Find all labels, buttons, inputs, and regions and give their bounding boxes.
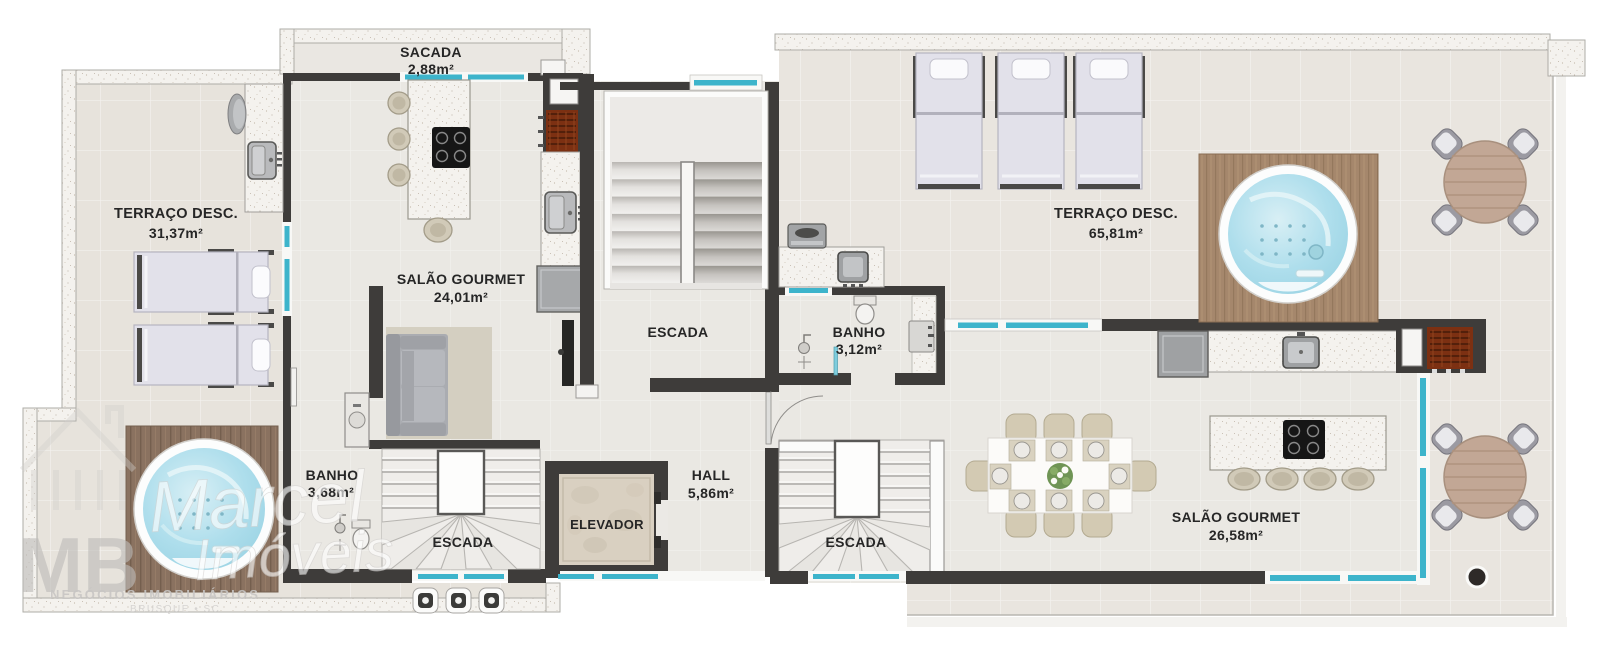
svg-text:65,81m²: 65,81m² [1089,225,1143,241]
svg-text:BANHO: BANHO [833,324,886,340]
svg-text:2,88m²: 2,88m² [408,61,454,77]
svg-text:TERRAÇO DESC.: TERRAÇO DESC. [1054,206,1178,222]
svg-text:26,58m²: 26,58m² [1209,527,1263,543]
svg-text:HALL: HALL [692,467,731,483]
svg-text:SALÃO GOURMET: SALÃO GOURMET [397,270,525,287]
svg-text:5,86m²: 5,86m² [688,485,734,501]
svg-text:BRUSQUE • SC: BRUSQUE • SC [130,604,220,615]
svg-text:ESCADA: ESCADA [433,534,494,550]
svg-text:TERRAÇO DESC.: TERRAÇO DESC. [114,206,238,222]
svg-text:ELEVADOR: ELEVADOR [570,517,644,532]
svg-text:24,01m²: 24,01m² [434,289,488,305]
svg-text:ESCADA: ESCADA [648,324,709,340]
svg-text:3,12m²: 3,12m² [836,341,882,357]
svg-text:Imóveis: Imóveis [192,518,395,593]
svg-text:SALÃO GOURMET: SALÃO GOURMET [1172,508,1300,525]
svg-text:NEGÓCIOS IMOBILIÁRIOS: NEGÓCIOS IMOBILIÁRIOS [50,587,260,602]
svg-text:ESCADA: ESCADA [826,534,887,550]
svg-text:SACADA: SACADA [400,44,462,60]
svg-text:31,37m²: 31,37m² [149,225,203,241]
